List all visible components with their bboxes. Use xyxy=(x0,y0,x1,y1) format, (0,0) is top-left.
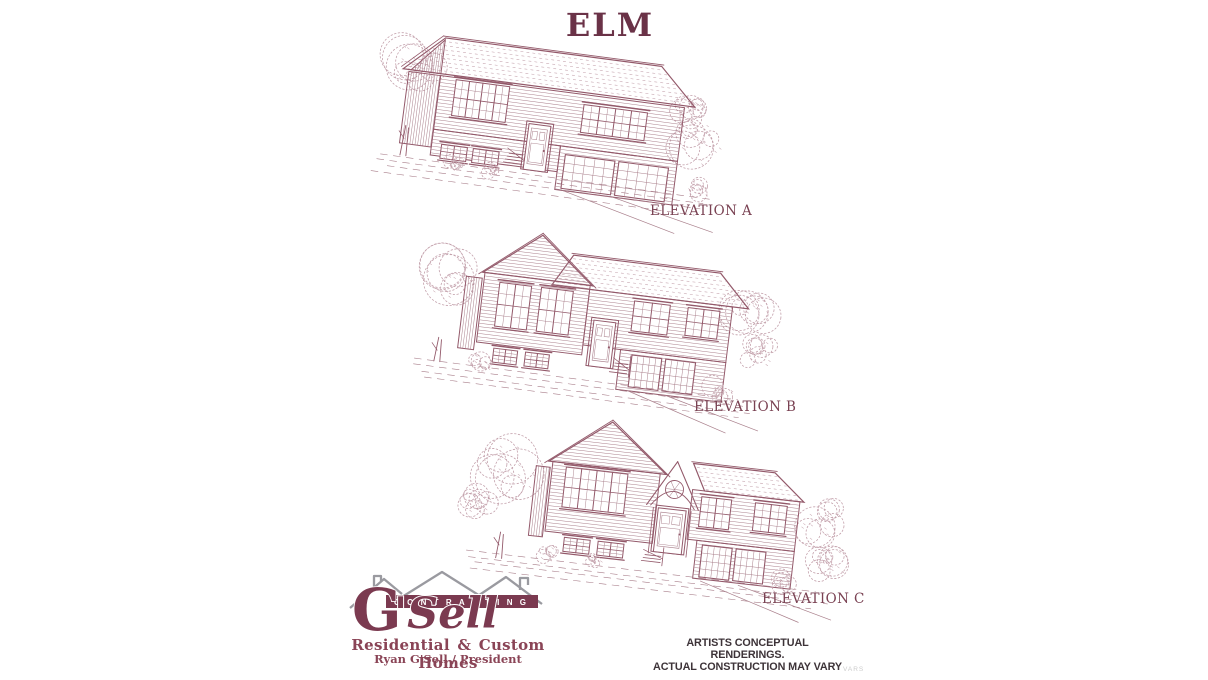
disclaimer-line2: ACTUAL CONSTRUCTION MAY VARY xyxy=(650,662,845,674)
elevation-a-label: ELEVATION A xyxy=(650,203,752,219)
elevation-c-label: ELEVATION C xyxy=(762,591,865,607)
logo-byline: Ryan G'Sell / President xyxy=(338,652,558,666)
disclaimer-line1: ARTISTS CONCEPTUAL RENDERINGS. xyxy=(650,638,845,662)
watermark-text: VARS xyxy=(843,666,864,673)
gsell-logo: CONTRACTING G 'Sell xyxy=(348,568,548,638)
elevation-b-label: ELEVATION B xyxy=(694,399,796,415)
disclaimer: ARTISTS CONCEPTUAL RENDERINGS. ACTUAL CO… xyxy=(650,638,845,673)
elevation-a-figure xyxy=(358,26,742,222)
elevation-a-drawing xyxy=(358,26,742,222)
elevation-b-drawing xyxy=(398,228,798,420)
logo-sell-text: 'Sell xyxy=(394,589,498,634)
gsell-logo-graphic: CONTRACTING G 'Sell xyxy=(348,568,548,634)
elevation-b-figure xyxy=(398,228,798,420)
